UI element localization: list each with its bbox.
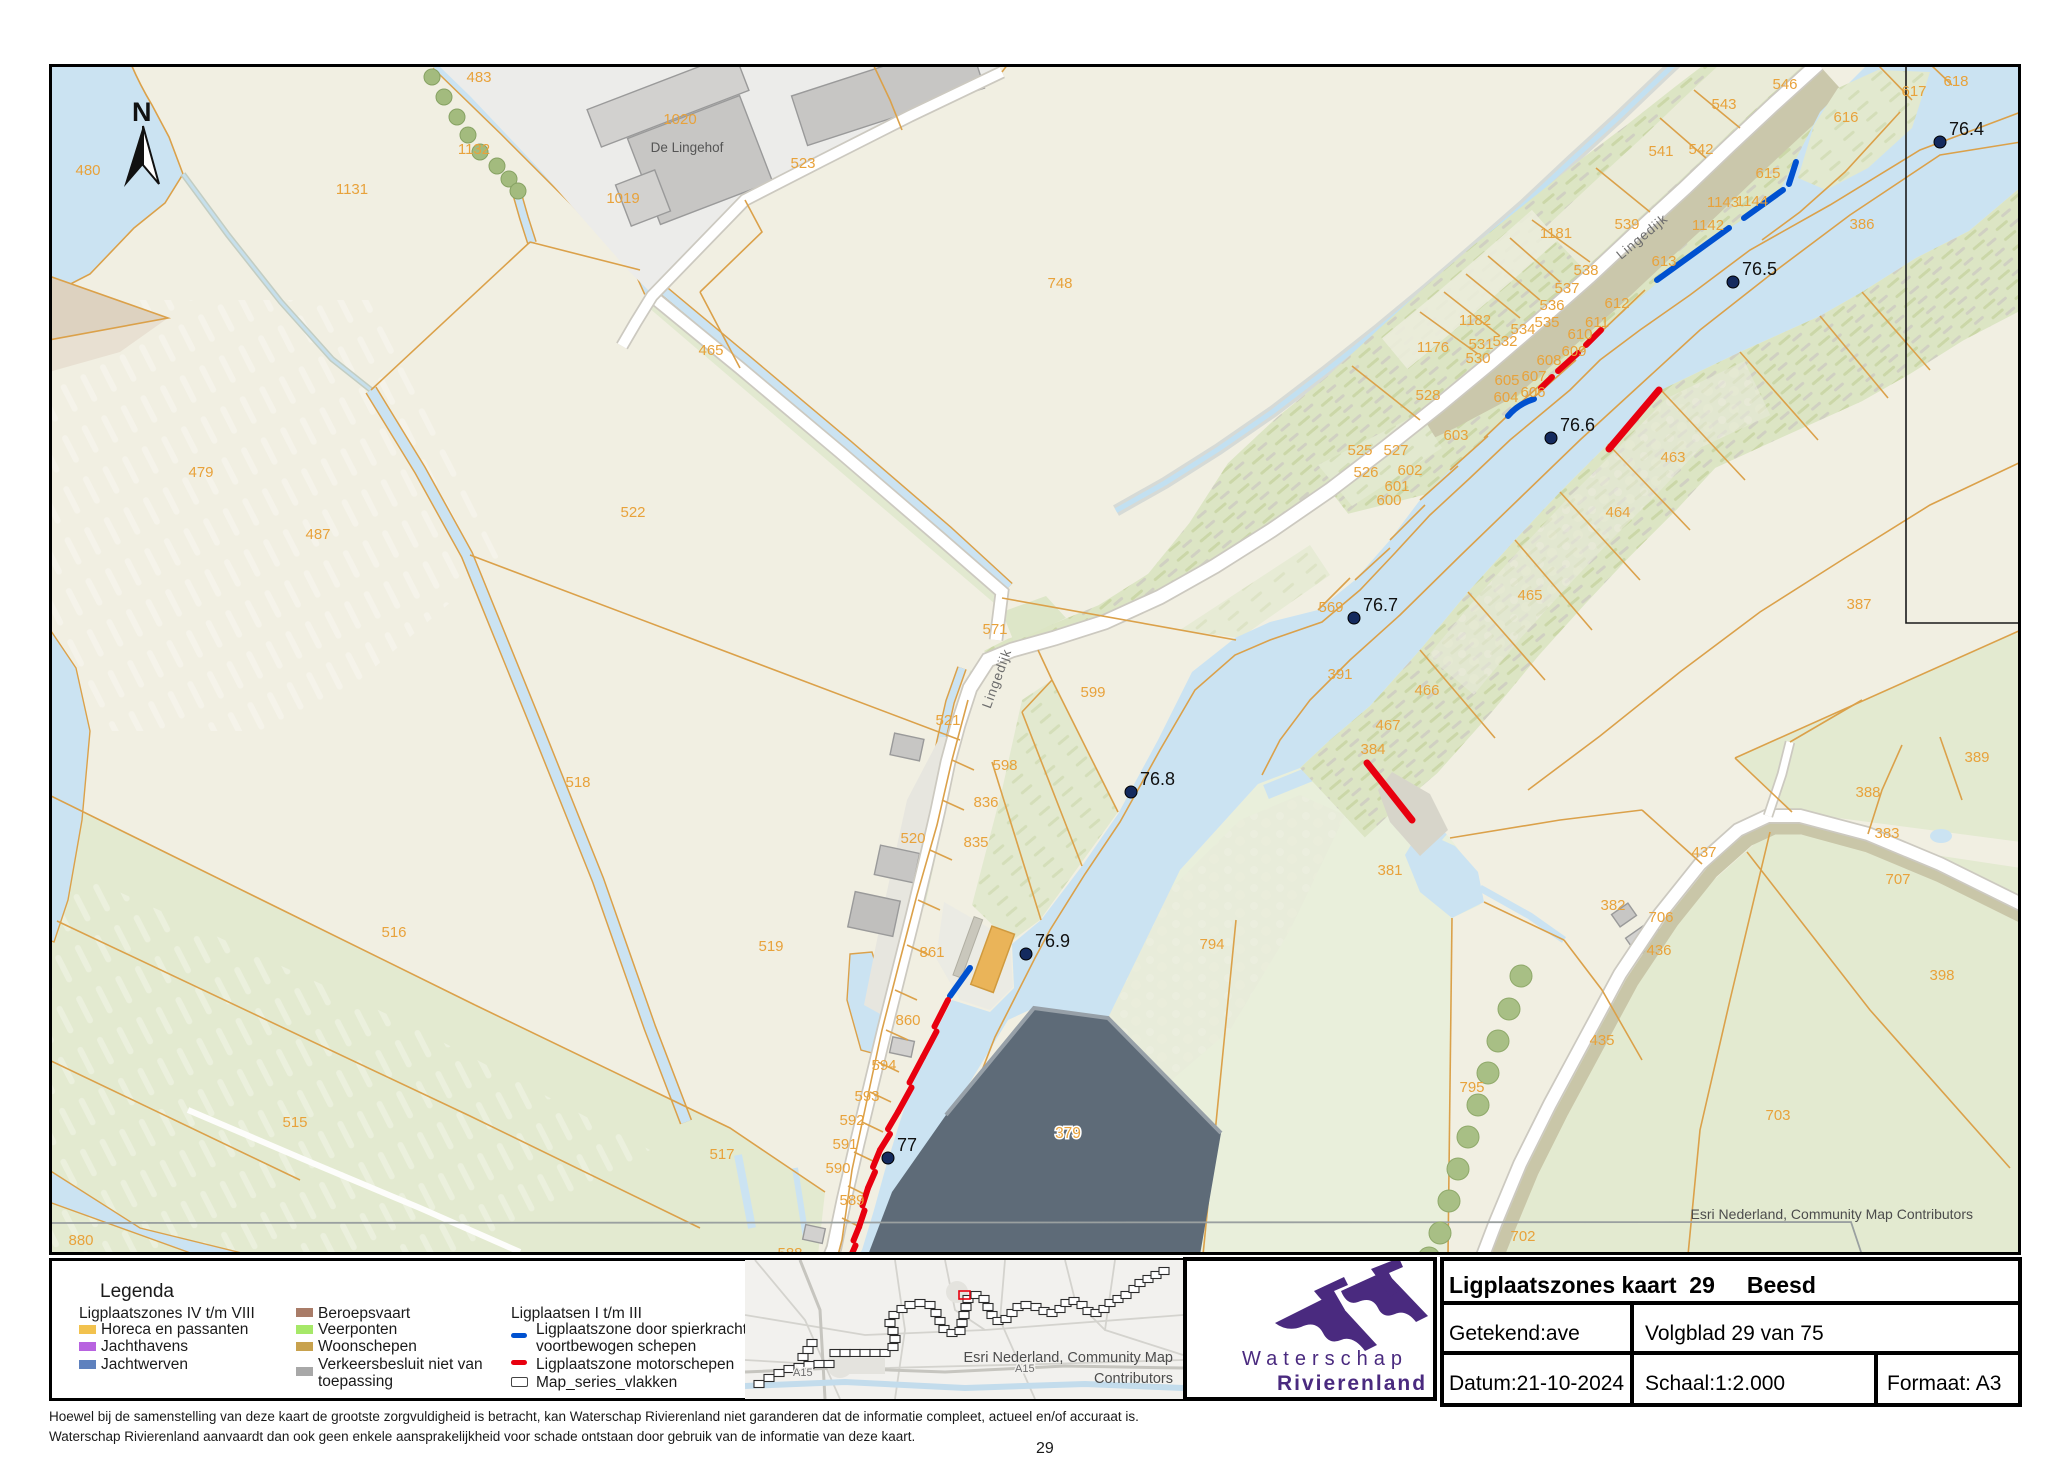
svg-text:Esri Nederland, Community Map: Esri Nederland, Community Map (963, 1350, 1173, 1366)
svg-text:A15: A15 (793, 1367, 813, 1379)
svg-text:Contributors: Contributors (1094, 1371, 1173, 1387)
svg-text:Rivierenland: Rivierenland (1277, 1372, 1427, 1395)
svg-text:Waterschap: Waterschap (1242, 1348, 1408, 1370)
